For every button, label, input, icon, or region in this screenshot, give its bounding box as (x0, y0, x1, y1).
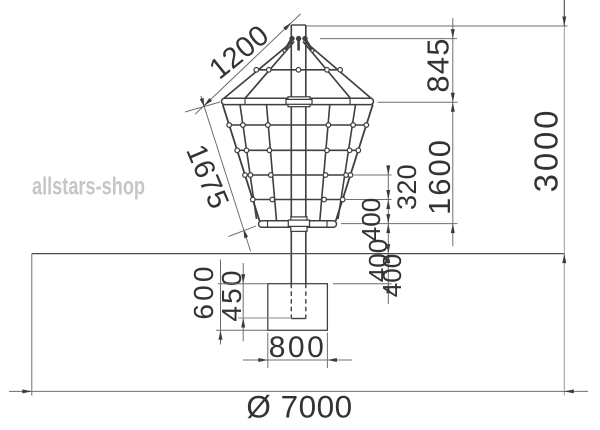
svg-text:allstars-shop: allstars-shop (32, 173, 145, 201)
svg-text:3000: 3000 (528, 108, 565, 193)
svg-text:400: 400 (356, 198, 386, 241)
svg-text:400: 400 (377, 254, 407, 297)
svg-text:845: 845 (420, 37, 455, 92)
svg-text:320: 320 (392, 164, 422, 210)
svg-text:600: 600 (188, 263, 219, 319)
svg-text:450: 450 (216, 268, 247, 321)
svg-text:800: 800 (269, 331, 327, 364)
svg-text:1600: 1600 (422, 138, 457, 215)
svg-text:Ø 7000: Ø 7000 (246, 389, 352, 425)
